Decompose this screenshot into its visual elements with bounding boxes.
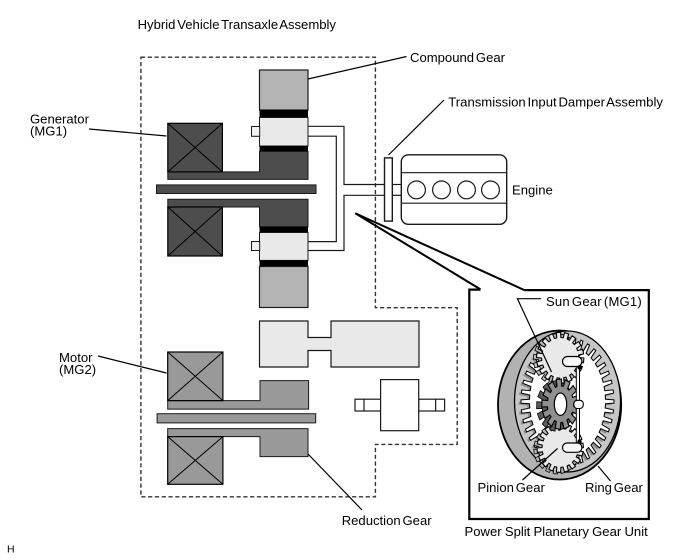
svg-text:Hybrid Vehicle Transaxle Assem: Hybrid Vehicle Transaxle Assembly [138,17,337,32]
svg-text:Transmission Input Damper Asse: Transmission Input Damper Assembly [448,95,663,110]
svg-text:H: H [7,544,15,556]
svg-text:(MG1): (MG1) [30,124,67,139]
svg-text:Engine: Engine [512,183,553,198]
svg-text:Ring Gear: Ring Gear [585,480,644,495]
svg-text:Sun Gear (MG1): Sun Gear (MG1) [546,294,642,309]
svg-text:Reduction Gear: Reduction Gear [342,513,433,528]
svg-text:Power Split Planetary Gear Uni: Power Split Planetary Gear Unit [465,524,649,539]
svg-text:Pinion Gear: Pinion Gear [478,480,546,495]
svg-text:(MG2): (MG2) [59,362,96,377]
svg-text:Compound Gear: Compound Gear [410,50,506,65]
